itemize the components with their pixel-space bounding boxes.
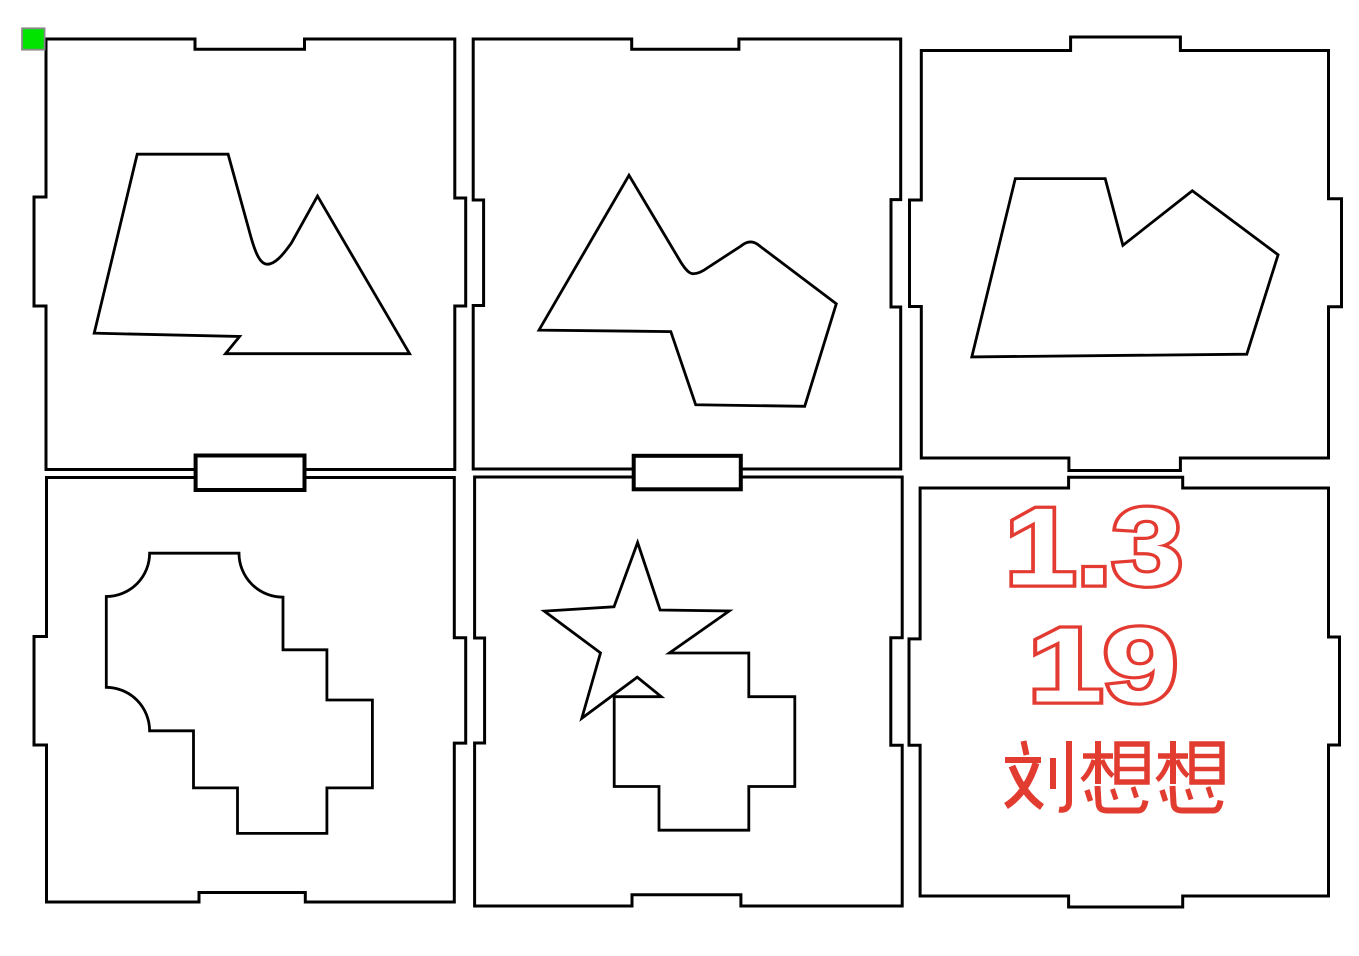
svg-text:19: 19: [1028, 607, 1178, 725]
svg-text:1.3: 1.3: [1005, 486, 1183, 609]
